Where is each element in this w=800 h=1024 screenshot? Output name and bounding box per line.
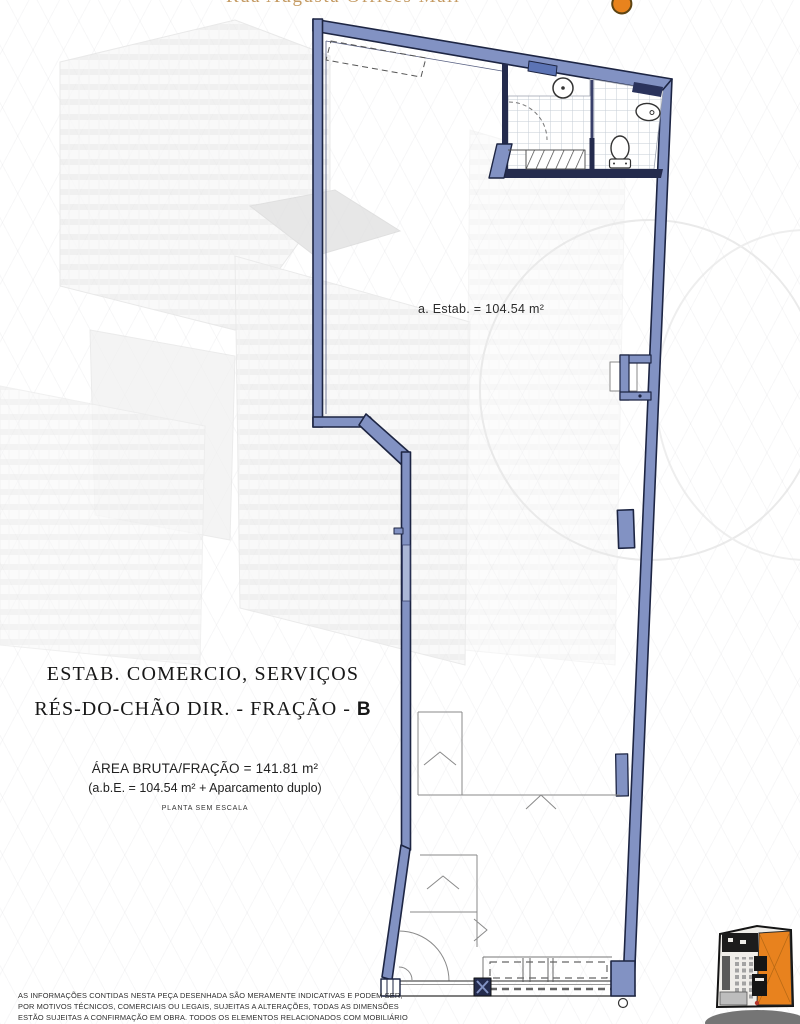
title-line-1: ESTAB. COMERCIO, SERVIÇOS	[28, 663, 378, 686]
clipped-header-title: Rua Augusta Offices Mall	[226, 0, 461, 8]
logo-mark-icon	[612, 0, 631, 13]
right-wall-window-panel	[616, 754, 629, 796]
minimap-shadow	[705, 1010, 800, 1024]
parking-chevron-3	[427, 876, 459, 889]
parking-markings	[399, 712, 620, 981]
background-building-watermark	[0, 20, 800, 665]
bathroom-divider-thick	[590, 138, 595, 169]
gross-area-label: ÁREA BRUTA/FRAÇÃO = 141.81 m²	[45, 761, 365, 776]
parking-chevron-2	[526, 795, 556, 809]
title-line-2-prefix: RÉS-DO-CHÃO DIR. - FRAÇÃO -	[34, 698, 356, 720]
minimap-entrance-dot	[755, 1001, 759, 1005]
ceiling-fan-center	[561, 86, 565, 90]
bathroom-bottom-wall	[504, 169, 663, 178]
minimap-block-bottom	[720, 992, 747, 1005]
corner-pillar	[611, 961, 635, 996]
toilet-icon	[610, 136, 631, 168]
disclaimer-line-1: AS INFORMAÇÕES CONTIDAS NESTA PEÇA DESEN…	[18, 990, 448, 1001]
garage-door-swing	[399, 931, 449, 981]
key-plan-minimap	[705, 926, 800, 1024]
right-wall-door-panel	[617, 510, 634, 549]
fraction-letter: B	[357, 699, 372, 720]
window-left-wall	[403, 545, 411, 601]
title-line-2: RÉS-DO-CHÃO DIR. - FRAÇÃO - B	[28, 698, 378, 721]
minimap-block-mid1	[754, 956, 767, 971]
disclaimer-line-2: POR MOTIVOS TÉCNICOS, COMERCIAIS OU LEGA…	[18, 1001, 448, 1012]
wall-top	[313, 19, 672, 92]
disclaimer-line-3: ESTÃO SUJEITAS A CONFIRMAÇÃO EM OBRA. TO…	[18, 1012, 448, 1023]
wall-left-lower	[402, 452, 411, 850]
parking-chevron-1	[424, 752, 456, 765]
wall-tick	[394, 528, 403, 534]
drawing-sheet	[0, 0, 800, 1024]
column-icon	[474, 978, 491, 996]
area-breakdown-label: (a.b.E. = 104.54 m² + Aparcamento duplo)	[45, 781, 365, 795]
title-block: ESTAB. COMERCIO, SERVIÇOS RÉS-DO-CHÃO DI…	[28, 663, 378, 721]
area-summary-block: ÁREA BRUTA/FRAÇÃO = 141.81 m² (a.b.E. = …	[45, 761, 365, 812]
minimap-block-left	[722, 956, 730, 990]
parking-chevron-4	[474, 919, 487, 941]
minimap-block-mid2	[752, 974, 767, 996]
shower-strip-hatch	[526, 150, 585, 169]
establishment-area-label: a. Estab. = 104.54 m²	[418, 302, 544, 316]
pillar-base-circle	[619, 999, 628, 1008]
no-scale-label: PLANTA SEM ESCALA	[45, 805, 365, 812]
wall-diagonal-lower	[382, 845, 410, 980]
wall-left	[313, 19, 323, 427]
legal-disclaimer: AS INFORMAÇÕES CONTIDAS NESTA PEÇA DESEN…	[18, 990, 448, 1023]
